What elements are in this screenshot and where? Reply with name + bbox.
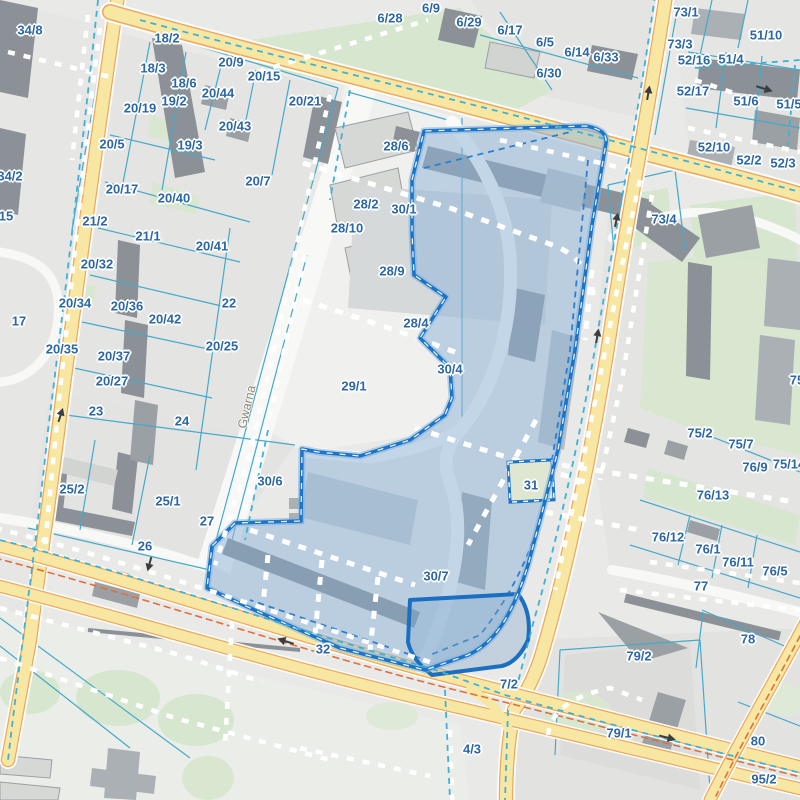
map-graphics — [0, 0, 800, 800]
map-canvas[interactable]: 34/86/96/286/296/176/56/146/336/3073/151… — [0, 0, 800, 800]
